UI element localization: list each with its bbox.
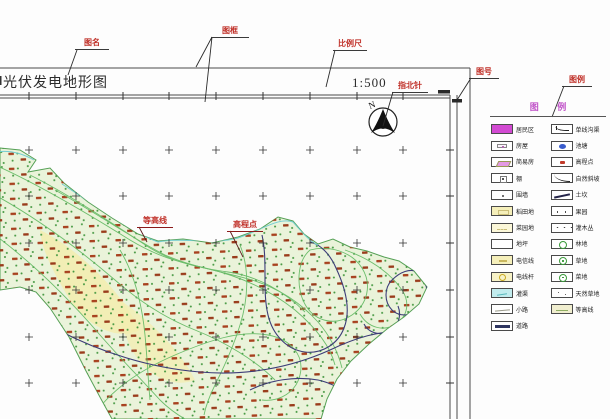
legend-symbol bbox=[491, 157, 513, 167]
legend-item: 灌渠 bbox=[491, 285, 549, 301]
legend-symbol bbox=[491, 304, 513, 314]
legend-item: 居民区 bbox=[491, 121, 549, 137]
legend-label: 菜园地 bbox=[516, 223, 534, 232]
legend-label: 果园 bbox=[576, 207, 588, 216]
legend-symbol bbox=[551, 206, 573, 216]
legend-symbol bbox=[551, 124, 573, 134]
legend-item: 池塘 bbox=[551, 137, 609, 153]
legend-symbol bbox=[551, 304, 573, 314]
legend-symbol bbox=[491, 173, 513, 183]
legend-symbol bbox=[491, 223, 513, 233]
legend-label: 单线沟渠 bbox=[576, 125, 600, 134]
legend-symbol bbox=[551, 239, 573, 249]
legend-item: 地坪 bbox=[491, 236, 549, 252]
topographic-drawing-canvas: N 光伏发电地形图 1:500 图名 图框 比例尺 指北针 图号 图例 等高线 … bbox=[0, 0, 610, 419]
legend-label: 棚 bbox=[516, 174, 522, 183]
legend-symbol bbox=[491, 255, 513, 265]
legend-symbol bbox=[491, 190, 513, 200]
legend-item: 电线杆 bbox=[491, 269, 549, 285]
legend-label: 草地 bbox=[576, 256, 588, 265]
callout-north-arrow: 指北针 bbox=[392, 80, 428, 93]
legend-label: 道路 bbox=[516, 321, 528, 330]
legend-symbol bbox=[491, 272, 513, 282]
legend-label: 居民区 bbox=[516, 125, 534, 134]
north-label: N bbox=[367, 99, 377, 111]
legend-label: 等高线 bbox=[576, 305, 594, 314]
callout-drawing-frame: 图框 bbox=[211, 25, 249, 38]
legend-label: 自然斜坡 bbox=[576, 174, 600, 183]
legend-symbol bbox=[491, 321, 513, 331]
legend-label: 土坎 bbox=[576, 190, 588, 199]
legend-column-right: 单线沟渠 池塘 高程点 自然斜坡 bbox=[551, 121, 609, 334]
legend-label: 电信线 bbox=[516, 256, 534, 265]
legend-symbol bbox=[551, 272, 573, 282]
legend-label: 小路 bbox=[516, 305, 528, 314]
legend-item: 围墙 bbox=[491, 187, 549, 203]
legend-item: 单线沟渠 bbox=[551, 121, 609, 137]
legend-item: 自然斜坡 bbox=[551, 170, 609, 186]
legend-label: 地坪 bbox=[516, 239, 528, 248]
legend-item: 草地 bbox=[551, 252, 609, 268]
legend-item: 天然草地 bbox=[551, 285, 609, 301]
legend-symbol bbox=[551, 288, 573, 298]
scale-value: 1:500 bbox=[352, 75, 387, 91]
legend-symbol bbox=[551, 173, 573, 183]
legend-item: 等高线 bbox=[551, 301, 609, 317]
legend-symbol bbox=[491, 239, 513, 249]
legend-item: 道路 bbox=[491, 318, 549, 334]
legend-item: 稻田地 bbox=[491, 203, 549, 219]
legend-label: 高程点 bbox=[576, 157, 594, 166]
terrain-area bbox=[0, 140, 440, 419]
legend-header: 图 例 bbox=[488, 100, 608, 113]
legend-item: 林地 bbox=[551, 236, 609, 252]
legend-symbol bbox=[551, 190, 573, 200]
callout-elevation-point: 高程点 bbox=[227, 219, 263, 232]
legend-divider bbox=[490, 116, 606, 117]
legend-item: 土坎 bbox=[551, 187, 609, 203]
callout-drawing-number: 图号 bbox=[469, 66, 499, 79]
legend-label: 灌渠 bbox=[516, 289, 528, 298]
legend-item: 菜园地 bbox=[491, 219, 549, 235]
legend-item: 房屋 bbox=[491, 137, 549, 153]
legend-label: 稻田地 bbox=[516, 207, 534, 216]
legend-symbol bbox=[551, 255, 573, 265]
legend-label: 围墙 bbox=[516, 190, 528, 199]
north-arrow: N bbox=[367, 99, 397, 136]
legend-label: 简易房 bbox=[516, 157, 534, 166]
legend-item: 小路 bbox=[491, 301, 549, 317]
legend-label: 房屋 bbox=[516, 141, 528, 150]
legend-label: 灌木丛 bbox=[576, 223, 594, 232]
legend-symbol bbox=[551, 141, 573, 151]
legend-label: 林地 bbox=[576, 239, 588, 248]
callout-scale-bar: 比例尺 bbox=[333, 38, 367, 51]
legend-item: 高程点 bbox=[551, 154, 609, 170]
legend-item: 菜地 bbox=[551, 269, 609, 285]
callout-contour-line: 等高线 bbox=[137, 215, 173, 228]
legend-label: 池塘 bbox=[576, 141, 588, 150]
legend-item: 灌木丛 bbox=[551, 219, 609, 235]
callout-legend: 图例 bbox=[562, 74, 592, 87]
legend-symbol bbox=[491, 206, 513, 216]
legend-symbol bbox=[491, 124, 513, 134]
drawing-title: 光伏发电地形图 bbox=[3, 72, 108, 92]
legend-symbol bbox=[551, 157, 573, 167]
legend-item: 电信线 bbox=[491, 252, 549, 268]
callout-drawing-name: 图名 bbox=[75, 37, 109, 50]
cropped-title-char bbox=[0, 76, 2, 85]
legend-label: 电线杆 bbox=[516, 272, 534, 281]
legend-label: 天然草地 bbox=[576, 289, 600, 298]
legend-column-left: 居民区 房屋 简易房 棚 bbox=[491, 121, 549, 334]
legend-item: 简易房 bbox=[491, 154, 549, 170]
legend-item: 棚 bbox=[491, 170, 549, 186]
legend-panel: 图 例 居民区 房屋 简易房 bbox=[488, 100, 608, 334]
legend-symbol bbox=[551, 223, 573, 233]
legend-label: 菜地 bbox=[576, 272, 588, 281]
legend-symbol bbox=[491, 288, 513, 298]
legend-symbol bbox=[491, 141, 513, 151]
legend-item: 果园 bbox=[551, 203, 609, 219]
